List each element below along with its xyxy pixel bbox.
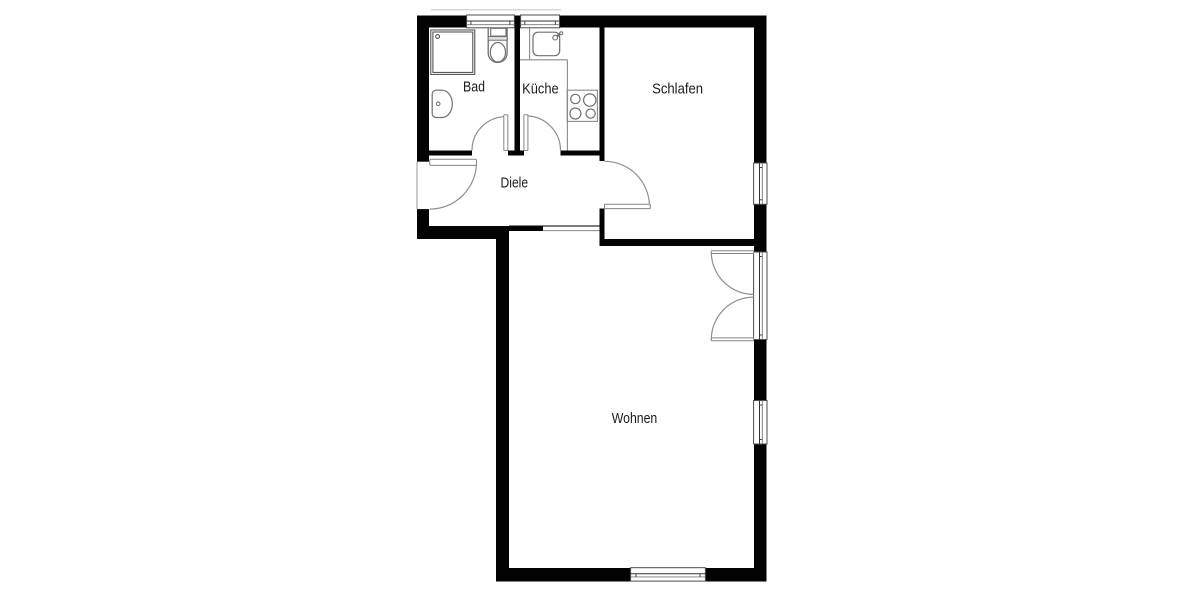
svg-text:Wohnen: Wohnen <box>612 411 658 427</box>
svg-text:Diele: Diele <box>501 176 529 192</box>
svg-text:Bad: Bad <box>463 79 485 95</box>
svg-text:Küche: Küche <box>522 81 559 97</box>
svg-text:Schlafen: Schlafen <box>652 81 703 97</box>
